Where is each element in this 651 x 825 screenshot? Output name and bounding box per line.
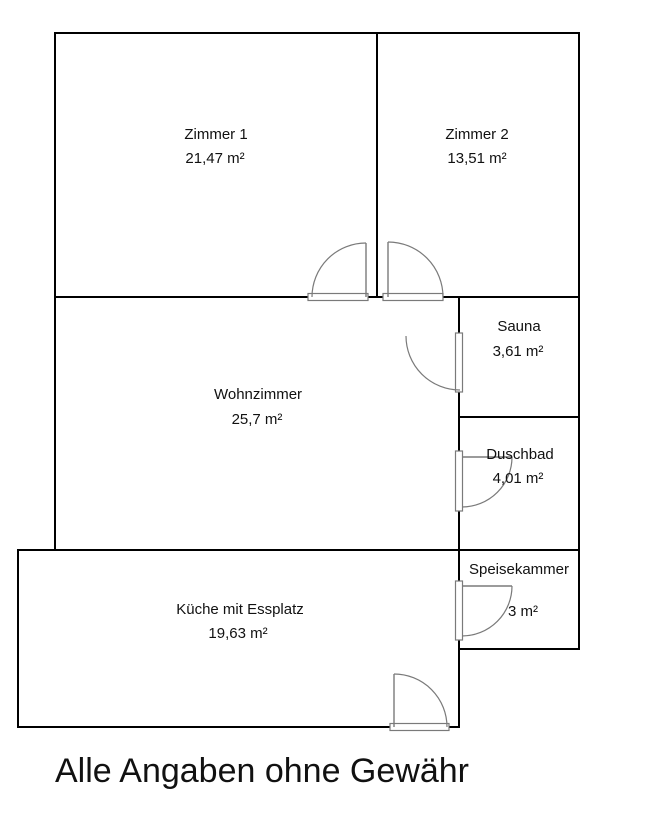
door-zimmer2-arc bbox=[388, 242, 443, 297]
room-name-kueche: Küche mit Essplatz bbox=[176, 601, 304, 618]
door-duschbad-threshold bbox=[456, 451, 463, 511]
room-name-wohnzimmer: Wohnzimmer bbox=[214, 386, 302, 403]
room-name-zimmer2: Zimmer 2 bbox=[445, 126, 508, 143]
room-name-sauna: Sauna bbox=[497, 318, 540, 335]
floorplan: Zimmer 1 21,47 m² Zimmer 2 13,51 m² Saun… bbox=[0, 0, 651, 825]
room-area-wohnzimmer: 25,7 m² bbox=[232, 411, 283, 428]
door-zimmer1-threshold bbox=[308, 294, 368, 301]
room-name-zimmer1: Zimmer 1 bbox=[184, 126, 247, 143]
door-sauna-threshold bbox=[456, 333, 463, 392]
room-area-sauna: 3,61 m² bbox=[493, 343, 544, 360]
door-sauna-arc bbox=[406, 336, 460, 390]
room-area-speisekammer: 3 m² bbox=[508, 603, 538, 620]
door-kueche-arc bbox=[394, 674, 447, 727]
disclaimer-text: Alle Angaben ohne Gewähr bbox=[55, 753, 469, 790]
door-zimmer2-threshold bbox=[383, 294, 443, 301]
door-zimmer1-arc bbox=[312, 243, 366, 297]
room-area-zimmer2: 13,51 m² bbox=[447, 150, 506, 167]
room-name-speisekammer: Speisekammer bbox=[469, 561, 569, 578]
door-speisekammer-threshold bbox=[456, 581, 463, 640]
door-kueche-threshold bbox=[390, 724, 449, 731]
door-speisekammer-arc bbox=[462, 586, 512, 636]
room-area-zimmer1: 21,47 m² bbox=[185, 150, 244, 167]
floorplan-drawing bbox=[0, 0, 651, 825]
room-area-duschbad: 4,01 m² bbox=[493, 470, 544, 487]
room-area-kueche: 19,63 m² bbox=[208, 625, 267, 642]
room-name-duschbad: Duschbad bbox=[486, 446, 554, 463]
